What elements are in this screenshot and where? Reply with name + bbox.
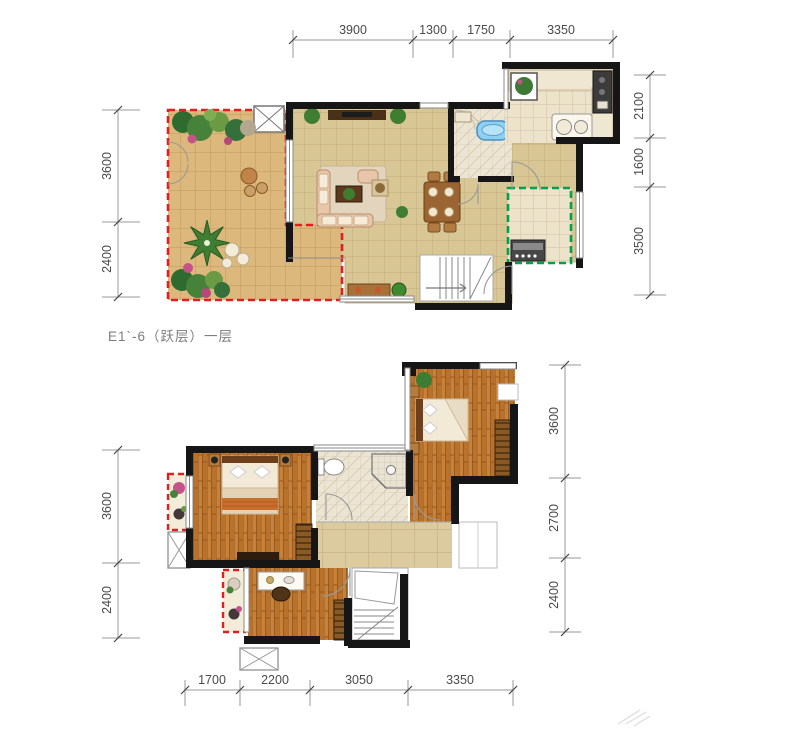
shower-drain bbox=[387, 466, 396, 475]
stove-panel bbox=[597, 101, 608, 109]
plan-title: E1`-6（跃层）一层 bbox=[108, 329, 233, 344]
plant-icon bbox=[396, 206, 408, 218]
sofa-cushion bbox=[338, 216, 352, 225]
dim-label: 1750 bbox=[467, 23, 495, 37]
leaf-icon bbox=[227, 587, 234, 594]
dim-label: 3600 bbox=[100, 492, 114, 520]
shoe-cabinet bbox=[348, 284, 390, 297]
dim-label: 3900 bbox=[339, 23, 367, 37]
plate bbox=[429, 188, 438, 197]
staircase-2 bbox=[352, 568, 408, 641]
stove-burner bbox=[599, 89, 605, 95]
washer-top bbox=[513, 243, 543, 250]
flower-box-2 bbox=[223, 570, 245, 632]
dim-label: 1700 bbox=[198, 673, 226, 687]
dim-label: 3350 bbox=[446, 673, 474, 687]
flower-icon bbox=[236, 606, 242, 612]
tv-icon bbox=[237, 552, 279, 560]
plant-icon bbox=[416, 372, 432, 388]
dim-label: 3050 bbox=[345, 673, 373, 687]
watermark-fragment bbox=[618, 710, 650, 726]
plate bbox=[445, 188, 454, 197]
tv-icon bbox=[342, 112, 372, 117]
desk-item bbox=[267, 577, 274, 584]
plant-icon bbox=[392, 283, 406, 297]
bed-throw bbox=[222, 498, 278, 510]
utility-area bbox=[508, 188, 571, 263]
desk-chair bbox=[272, 587, 290, 601]
floor2-plan bbox=[168, 362, 518, 670]
plant-icon bbox=[515, 77, 533, 95]
dining-chair bbox=[444, 223, 456, 232]
dim-label: 2400 bbox=[100, 245, 114, 273]
plant-flower bbox=[518, 80, 523, 85]
parasol-icon bbox=[184, 220, 230, 266]
bed-headboard bbox=[416, 399, 423, 441]
washer-knob bbox=[527, 254, 530, 257]
dim-label: 1600 bbox=[632, 148, 646, 176]
sofa-cushion bbox=[319, 190, 328, 204]
bottom-crossed-box-icon bbox=[240, 648, 278, 670]
bathtub-inner bbox=[482, 125, 504, 136]
wardrobe bbox=[495, 420, 510, 476]
study-room bbox=[248, 568, 349, 640]
plant-icon bbox=[390, 108, 406, 124]
cabinet-motif bbox=[375, 287, 381, 293]
wardrobe bbox=[296, 524, 312, 562]
dim-label: 3600 bbox=[100, 152, 114, 180]
dining-chair bbox=[428, 223, 440, 232]
sink-basin bbox=[557, 120, 572, 135]
plant-icon bbox=[343, 188, 355, 200]
bedroom-master bbox=[192, 452, 312, 562]
sofa-cushion bbox=[322, 216, 336, 225]
sofa-cushion bbox=[319, 174, 328, 188]
dim-label: 2700 bbox=[547, 504, 561, 532]
plate bbox=[445, 208, 454, 217]
kitchen bbox=[505, 68, 617, 143]
leaf-icon bbox=[170, 490, 178, 498]
staircase-1 bbox=[420, 255, 493, 301]
toilet-icon bbox=[324, 459, 344, 475]
washer-knob bbox=[515, 254, 518, 257]
stove-burner bbox=[599, 77, 605, 83]
dim-label: 3350 bbox=[547, 23, 575, 37]
washer-knob bbox=[533, 254, 536, 257]
plate bbox=[429, 208, 438, 217]
sink bbox=[455, 112, 471, 122]
desk-item bbox=[284, 577, 294, 584]
floorplan-page: 3900 1300 1750 3350 3600 2400 2100 1600 … bbox=[0, 0, 800, 730]
bed-headboard bbox=[222, 456, 278, 463]
dining-chair bbox=[428, 172, 440, 181]
dim-label: 2100 bbox=[632, 92, 646, 120]
plant-icon bbox=[304, 108, 320, 124]
stair-landing bbox=[355, 571, 398, 604]
hall-2 bbox=[316, 522, 497, 568]
side-table-lamp bbox=[375, 183, 385, 193]
floorplan-canvas: 3900 1300 1750 3350 3600 2400 2100 1600 … bbox=[0, 0, 800, 730]
dim-label: 3500 bbox=[632, 227, 646, 255]
dining-table bbox=[424, 182, 460, 222]
sofa-cushion bbox=[354, 216, 368, 225]
dim-label: 2200 bbox=[261, 673, 289, 687]
vent-shaft-icon bbox=[254, 106, 284, 132]
dim-label: 1300 bbox=[419, 23, 447, 37]
washer-knob bbox=[521, 254, 524, 257]
bedroom-right bbox=[408, 368, 518, 522]
toilet-tank bbox=[318, 459, 324, 475]
dim-label: 2400 bbox=[547, 581, 561, 609]
cabinet-motif bbox=[355, 287, 361, 293]
dim-label: 2400 bbox=[100, 586, 114, 614]
sink-basin bbox=[575, 121, 588, 134]
dim-label: 3600 bbox=[547, 407, 561, 435]
lamp-icon bbox=[211, 457, 218, 464]
bathroom-2 bbox=[316, 450, 408, 522]
lamp-icon bbox=[282, 457, 289, 464]
floor1-plan bbox=[168, 62, 620, 310]
entry-console bbox=[348, 283, 406, 297]
bathroom-1 bbox=[452, 108, 512, 178]
